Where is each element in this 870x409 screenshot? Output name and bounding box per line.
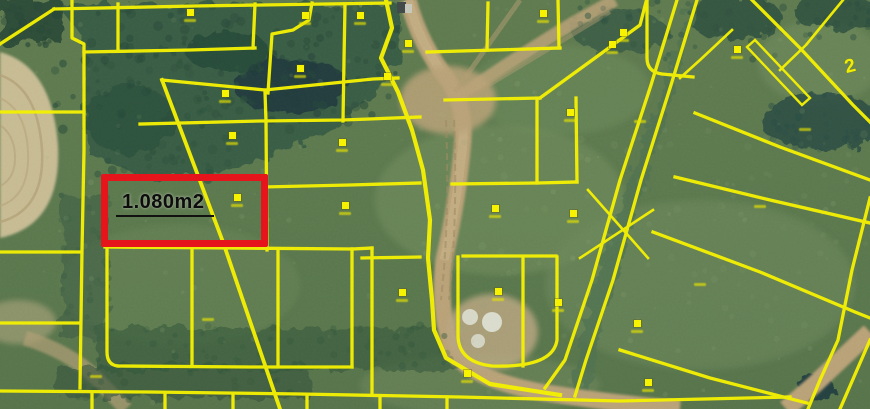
parcel-number-smudge — [381, 83, 393, 86]
parcel-number-smudge — [694, 283, 706, 286]
parcel-marker — [229, 132, 236, 139]
parcel-marker — [464, 370, 471, 377]
parcel-marker — [297, 65, 304, 72]
parcel-number-smudge — [402, 50, 414, 53]
parcel-number-smudge — [219, 100, 231, 103]
parcel-marker — [620, 29, 627, 36]
parcel-number-smudge — [799, 128, 811, 131]
parcel-number-smudge — [567, 220, 579, 223]
parcel-number-smudge — [552, 309, 564, 312]
parcel-number-smudge — [396, 299, 408, 302]
highlight-rectangle: 1.080m2 — [101, 174, 268, 247]
parcel-marker — [540, 10, 547, 17]
parcel-number-smudge — [489, 215, 501, 218]
parcel-number-smudge — [294, 75, 306, 78]
parcel-marker — [187, 9, 194, 16]
parcel-number-smudge — [754, 205, 766, 208]
parcel-number-smudge — [354, 22, 366, 25]
parcel-number-smudge — [731, 56, 743, 59]
parcel-marker — [492, 205, 499, 212]
area-label: 1.080m2 — [116, 192, 214, 217]
parcel-number-smudge — [202, 318, 214, 321]
parcel-marker — [405, 40, 412, 47]
parcel-marker — [384, 73, 391, 80]
parcel-marker — [339, 139, 346, 146]
parcel-number-smudge — [537, 20, 549, 23]
parcel-marker — [555, 299, 562, 306]
parcel-number-smudge — [642, 389, 654, 392]
parcel-number-smudge — [564, 119, 576, 122]
parcel-marker — [609, 41, 616, 48]
parcel-marker — [342, 202, 349, 209]
parcel-number-smudge — [339, 212, 351, 215]
parcel-marker — [567, 109, 574, 116]
parcel-marker — [645, 379, 652, 386]
parcel-number-smudge — [606, 51, 618, 54]
map-canvas[interactable]: 1.080m2 2 — [0, 0, 870, 409]
parcel-number-smudge — [492, 298, 504, 301]
parcel-number-smudge — [631, 330, 643, 333]
parcel-number-smudge — [184, 19, 196, 22]
parcel-marker — [495, 288, 502, 295]
parcel-number-smudge — [299, 22, 311, 25]
parcel-number-smudge — [226, 142, 238, 145]
parcel-number-smudge — [461, 380, 473, 383]
parcel-number-smudge — [634, 120, 646, 123]
parcel-marker — [222, 90, 229, 97]
parcel-number-smudge — [90, 375, 102, 378]
parcel-marker — [357, 12, 364, 19]
parcel-marker — [734, 46, 741, 53]
parcel-number-smudge — [617, 39, 629, 42]
parcel-number-smudge — [336, 149, 348, 152]
parcel-marker — [302, 12, 309, 19]
parcel-marker — [399, 289, 406, 296]
parcel-marker — [570, 210, 577, 217]
parcel-marker — [634, 320, 641, 327]
